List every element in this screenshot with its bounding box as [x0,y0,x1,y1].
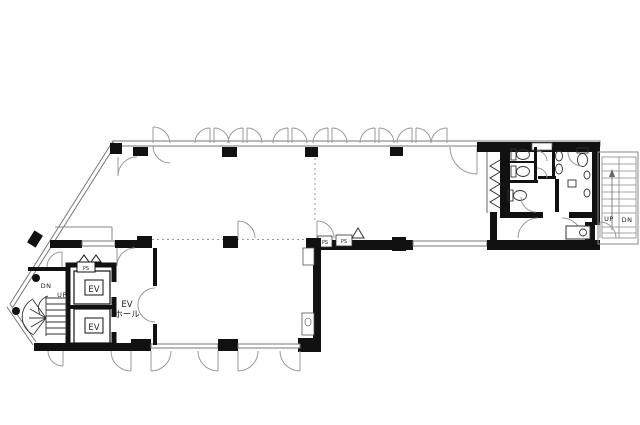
ev-hall-door-swing [117,248,135,266]
elevator-1-label: EV [88,285,99,295]
left-spiral-stair: DN UP [22,252,70,336]
floor-plan-canvas: PS PS EV [0,0,640,425]
junction-ps1-label: PS [322,240,328,246]
ev-hall-label-line1: EV [121,300,132,310]
large-door-swing [450,147,477,174]
floor-plan-svg: PS PS EV [0,0,640,425]
dotted-partitions [152,158,315,240]
elevator-2-label: EV [88,323,99,333]
vent-triangles-icon [79,255,101,262]
round-column [32,274,40,282]
right-stair-up-label: UP [604,215,614,223]
zigzag-partition-icon [490,160,500,208]
junction-ps2-label: PS [341,239,347,245]
ev-hall-label-line2: ホール [114,310,140,320]
right-stair-block: UP DN [598,152,638,244]
stair-door-swing [600,222,616,238]
building-right-wall [592,152,600,225]
toilet-fixtures [508,148,590,201]
top-wall-window-swings [118,127,477,176]
partition-piers [137,236,238,248]
toilet-block [477,142,600,242]
ev-ps-label: PS [83,266,89,272]
upper-left-door-swing [118,157,137,176]
vent-triangle-icon [352,228,364,238]
right-stair-dn-label: DN [622,216,633,224]
partition-door-swings [238,221,334,238]
wall-fixture-lower [302,313,314,335]
bottom-wall-window-swings [48,351,300,371]
wall-fixture-upper [303,248,314,265]
left-stair-dn-label: DN [41,282,52,290]
stair-direction-arrow [609,169,615,177]
ev-hall-double-door-swings [138,288,155,322]
diagonal-wall-columns [12,230,43,315]
toilet-door-swings [518,151,582,238]
left-stair-up-label: UP [57,291,67,299]
round-column [12,307,20,315]
